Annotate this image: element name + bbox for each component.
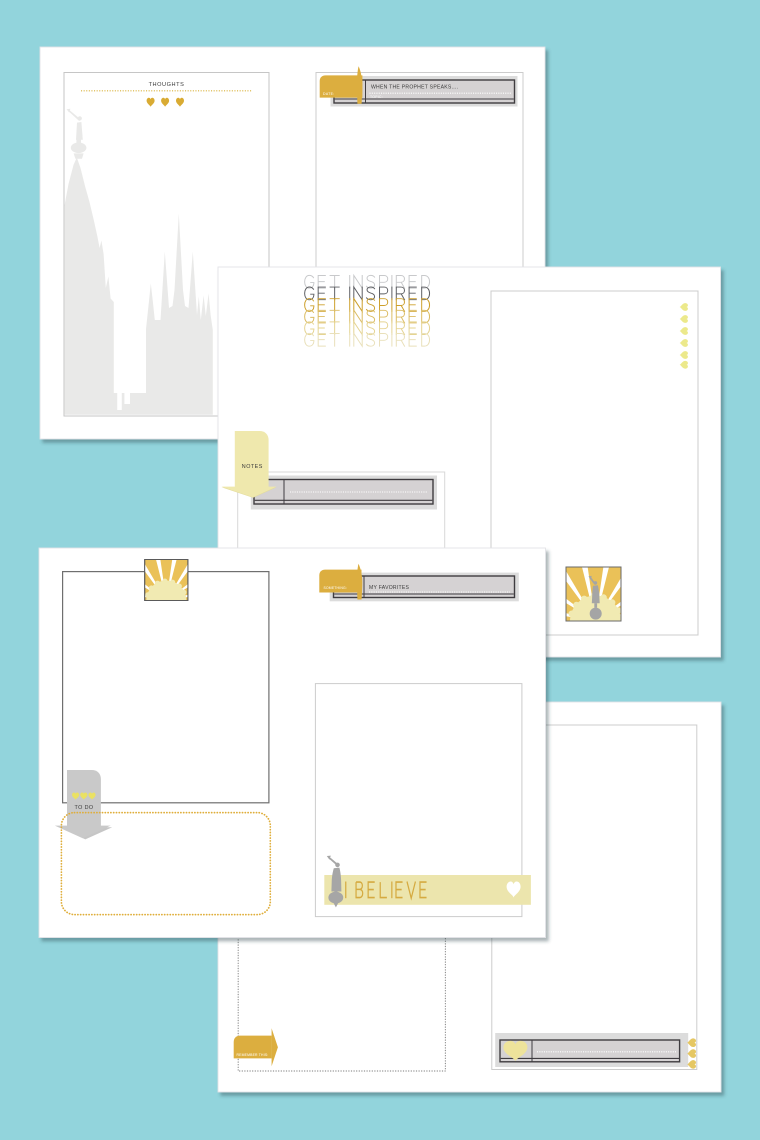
svg-text:TOPIC:: TOPIC: [370,95,383,99]
svg-text:THOUGHTS: THOUGHTS [149,82,185,88]
svg-text:TO DO: TO DO [75,805,94,811]
svg-text:WHEN THE PROPHET SPEAKS....: WHEN THE PROPHET SPEAKS.... [371,84,458,90]
svg-text:SOMETHING:: SOMETHING: [324,586,347,590]
svg-text:REMEMBER THIS:: REMEMBER THIS: [237,1053,269,1057]
svg-text:MY FAVORITES: MY FAVORITES [369,585,410,591]
svg-text:NOTES: NOTES [242,464,263,470]
svg-text:DATE:: DATE: [323,92,335,96]
